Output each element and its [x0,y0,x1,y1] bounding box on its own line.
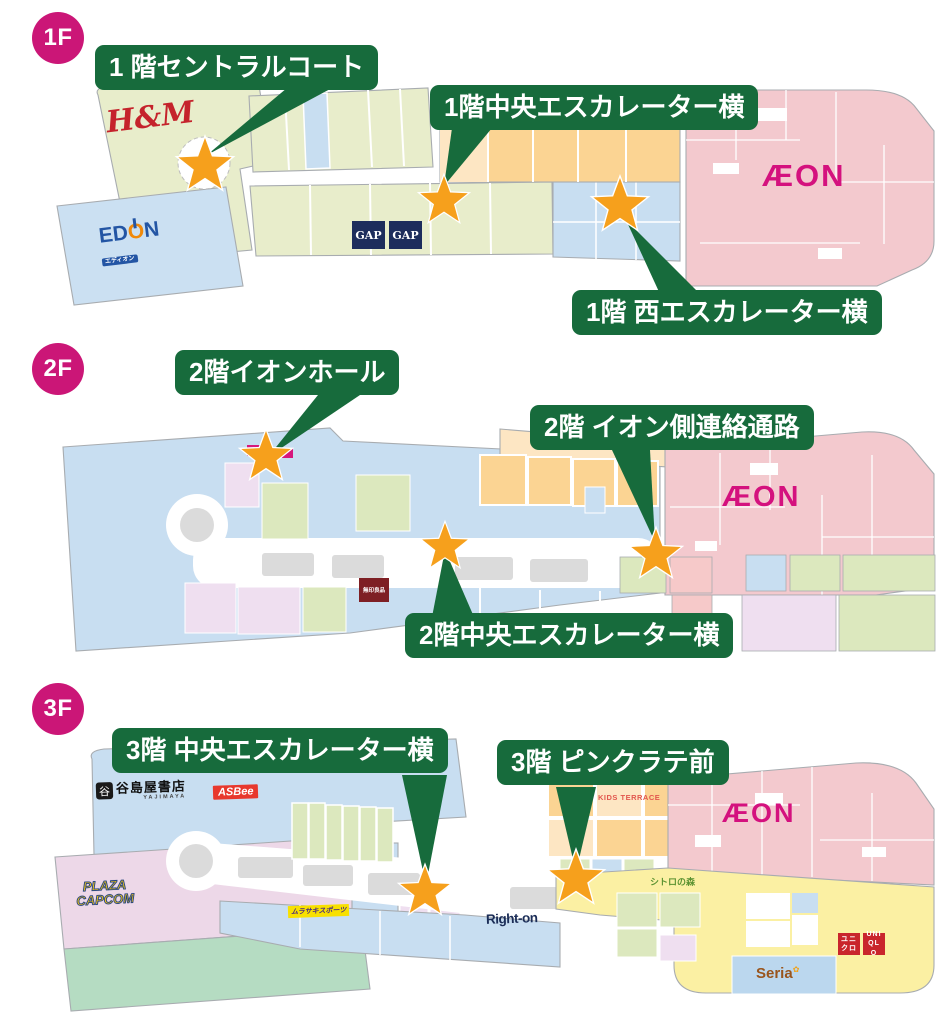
floor-2f-section: 2F 2階イオンホール 2階 イオン側連絡通路 2階中央エスカレーター横 無印良… [0,335,940,675]
murasaki-sports-logo: ムラサキスポーツ [288,904,350,918]
rotunda-circle [180,508,214,542]
callout-label: 2階 イオン側連絡通路 [530,405,814,450]
aeon-logo: ÆON [762,158,846,194]
callout-label: 2階中央エスカレーター横 [405,613,733,658]
floor-1f-section: 1F 1 階セントラルコート 1階中央エスカレーター横 1階 西エスカレーター横… [0,0,940,335]
aeon-logo: ÆON [722,798,796,829]
callout-label: 2階イオンホール [175,350,399,395]
uniqlo-en-logo: UNIQLO [863,933,885,955]
map-green-stripes [292,803,393,862]
floor-badge-3f: 3F [32,683,84,735]
seria-flower-icon: ✿ [793,965,800,974]
plaza-capcom-logo: PLAZA CAPCOM [75,878,134,908]
edion-power-icon: O [127,220,146,243]
aeon-logo: ÆON [722,481,801,514]
floor-3f-section: 3F 3階 中央エスカレーター横 3階 ピンクラテ前 谷 谷島屋書店 YAJIM… [0,675,940,1016]
callout-label: 1 階セントラルコート [95,45,378,90]
callout-label: 1階 西エスカレーター横 [572,290,882,335]
callout-label: 3階 中央エスカレーター横 [112,728,448,773]
shitoro-no-mori-logo: シトロの森 [650,875,695,888]
yajimaya-logo: 谷 谷島屋書店 YAJIMAYA [96,779,187,802]
yajimaya-mark-icon: 谷 [96,782,114,800]
muji-logo: 無印良品 [359,578,389,602]
kids-terrace-logo: KIDS TERRACE [598,793,660,802]
seria-text: Seria [756,965,793,982]
floor-badge-1f: 1F [32,12,84,64]
asbee-logo: ASBee [213,784,259,800]
right-on-logo: Right-on [486,910,538,927]
gap-logo: GAP [352,221,385,249]
callout-label: 3階 ピンクラテ前 [497,740,729,785]
uniqlo-jp-logo: ユニクロ [838,933,860,955]
callout-label: 1階中央エスカレーター横 [430,85,758,130]
edion-text: ED [98,221,130,247]
uniqlo-jp-text: ユニクロ [841,935,857,953]
rotunda-circle [179,844,213,878]
seria-logo: Seria✿ [756,965,799,982]
plaza-line2: CAPCOM [76,890,134,908]
yajimaya-text: 谷島屋書店 YAJIMAYA [116,779,187,802]
gap-logo: GAP [389,221,422,249]
edion-text: N [143,217,161,242]
edion-logo: EDON エディオン [98,218,163,267]
floor-badge-2f: 2F [32,343,84,395]
uniqlo-en-text: UNIQLO [866,930,882,957]
mall-floor-guide: { "colors": { "badge_pink": "#CB1677", "… [0,0,940,1016]
